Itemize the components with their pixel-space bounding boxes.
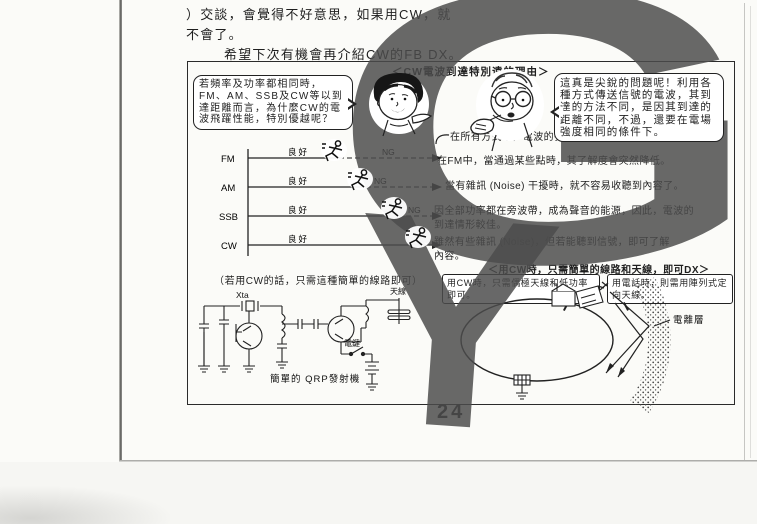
comic-panel: ＜CW電波到達特別遠的理由＞ 若頻率及功率都相同時，FM、AM、SSB及CW等以… (187, 61, 735, 405)
ssb-runner-icon (380, 197, 408, 220)
page-bottom-edge (119, 460, 757, 462)
note-ssb: 因全部功率都在旁波帶，成為聲音的能源，因此，電波的 到達情形較佳。 (434, 205, 694, 232)
earth-ionosphere-diagram: 電離層 (452, 276, 726, 402)
scanned-book-page: ）交談，會覺得不好意思，如果用CW，就 不會了。 希望下次有機會再介紹CW的FB… (0, 0, 757, 524)
fm-arrowhead (432, 154, 442, 162)
ssb-ng-label: NG (408, 205, 421, 215)
boy-hand (412, 114, 431, 123)
cw-arrowhead (432, 241, 442, 249)
earth-ellipse (461, 299, 613, 381)
note-cw-line1: 雖然有些雜訊 (Noise)，但若能聽到信號，即可了解 (434, 236, 670, 250)
boy-character-illustration (360, 68, 438, 144)
ray-arrowhead-1 (606, 363, 614, 373)
page-right-edge-outer (750, 6, 751, 458)
ionosphere-band (630, 277, 671, 413)
am-good-label: 良好 (288, 176, 309, 186)
key-label: 電鍵 (344, 338, 360, 348)
note-ssb-line2: 到達情形較佳。 (434, 219, 694, 233)
cw-good-label: 良好 (288, 234, 309, 244)
ssb-arrowhead (432, 212, 442, 220)
man-hand (471, 119, 494, 134)
row-label-fm: FM (221, 154, 235, 165)
am-ng-label: NG (374, 176, 387, 186)
question-text: 若頻率及功率都相同時，FM、AM、SSB及CW等以到達距離而言，為什麼CW的電波… (199, 79, 343, 125)
note-ssb-line1: 因全部功率都在旁波帶，成為聲音的能源，因此，電波的 (434, 205, 694, 219)
am-runner-icon (346, 168, 374, 191)
ssb-good-label: 良好 (288, 205, 309, 215)
cw-runner-icon (404, 226, 432, 249)
antenna-label: 天線 (390, 286, 406, 296)
intro-line-1: ）交談，會覺得不好意思，如果用CW，就 (186, 5, 616, 25)
scan-shadow (0, 486, 170, 524)
intro-paragraph: ）交談，會覺得不好意思，如果用CW，就 不會了。 希望下次有機會再介紹CW的FB… (186, 5, 616, 65)
receiver-site (514, 375, 530, 399)
page-number: 24 (437, 401, 465, 424)
page-right-edge (744, 3, 745, 460)
row-label-cw: CW (221, 241, 237, 252)
answer-speech-bubble: 這真是尖銳的問題呢！利用各種方式傳送信號的電波，其到達的方法不同，是因其到達的距… (554, 73, 724, 142)
fm-ng-label: NG (382, 147, 395, 157)
book-spine-line (119, 0, 122, 461)
fm-runner-icon (320, 139, 348, 162)
row-label-ssb: SSB (219, 212, 238, 223)
transmitter-site (552, 282, 608, 308)
question-speech-bubble: 若頻率及功率都相同時，FM、AM、SSB及CW等以到達距離而言，為什麼CW的電波… (193, 75, 353, 130)
xtal-label: Xta (236, 290, 249, 300)
intro-line-2: 不會了。 (186, 25, 616, 45)
note-cw: 雖然有些雜訊 (Noise)，但若能聽到信號，即可了解 內容。 (434, 236, 670, 263)
row-label-am: AM (221, 183, 235, 194)
man-mouth (508, 113, 515, 118)
fm-good-label: 良好 (288, 147, 309, 157)
qrp-transmitter-schematic: Xta 電鍵 天線 簡單的 QRP發射機 (194, 284, 424, 404)
answer-text: 這真是尖銳的問題呢！利用各種方式傳送信號的電波，其到達的方法不同，是因其到達的距… (560, 77, 712, 138)
note-am: 當有雜訊 (Noise) 干擾時，就不容易收聽到內容了。 (445, 180, 684, 194)
am-arrowhead (432, 183, 442, 191)
circuit-name: 簡單的 QRP發射機 (270, 373, 360, 385)
note-fm: 在FM中，當通過某些點時，其了解度會突然降低。 (437, 155, 671, 169)
ionosphere-label: 電離層 (673, 314, 705, 326)
